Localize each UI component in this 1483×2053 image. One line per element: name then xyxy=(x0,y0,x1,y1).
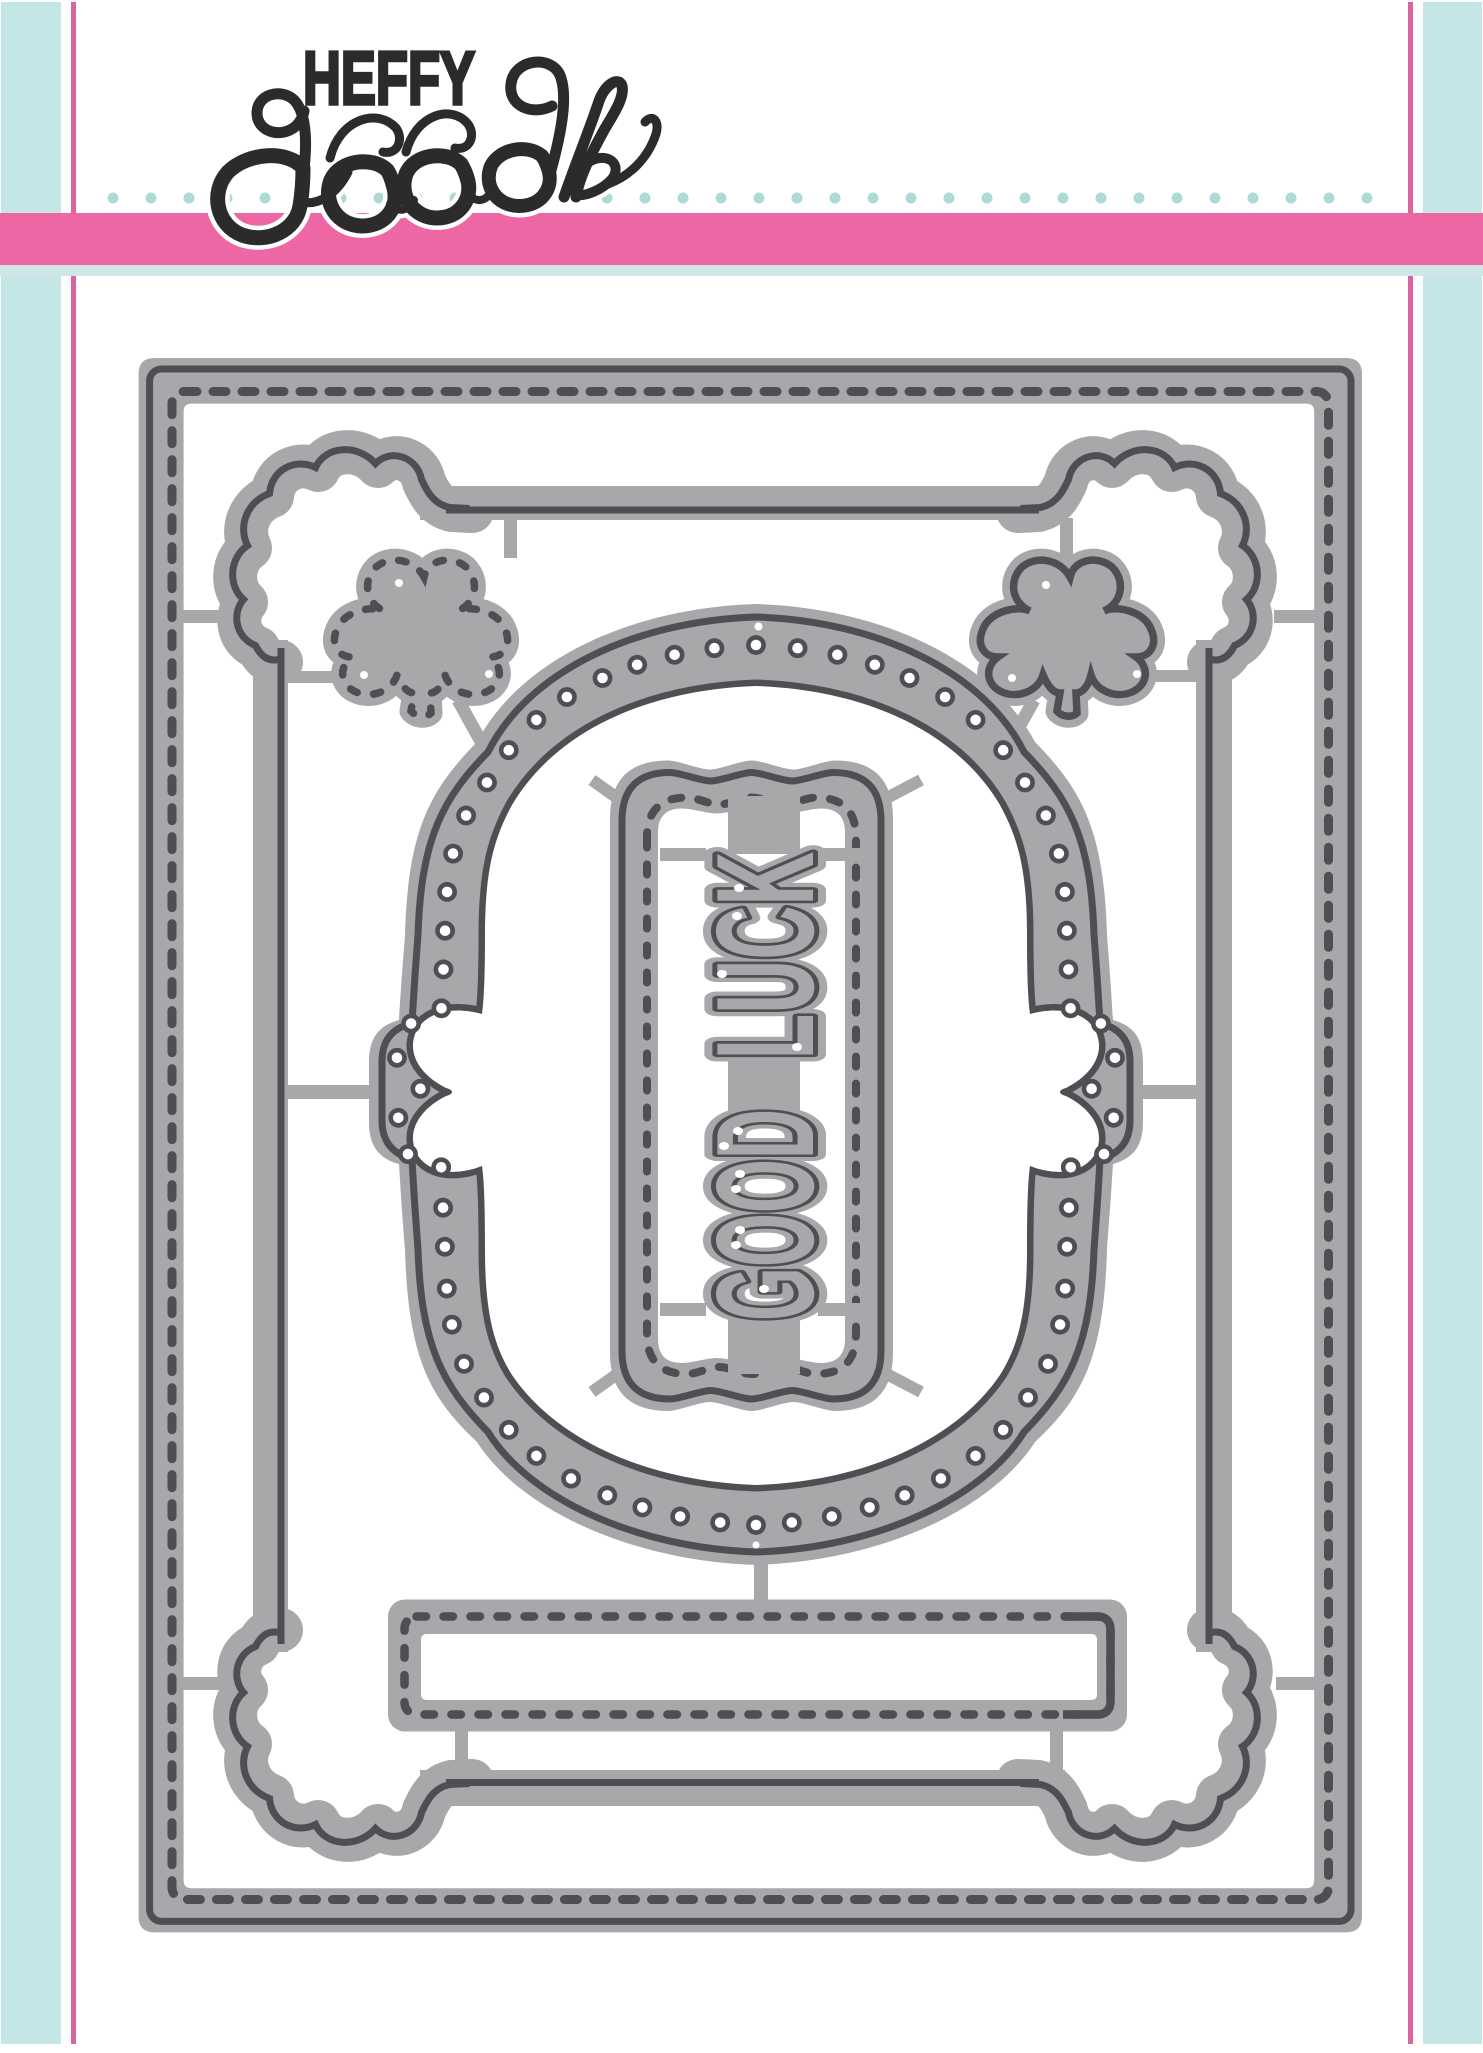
svg-text:LUCK: LUCK xyxy=(688,852,843,1060)
svg-text:HEFFY: HEFFY xyxy=(303,36,475,120)
